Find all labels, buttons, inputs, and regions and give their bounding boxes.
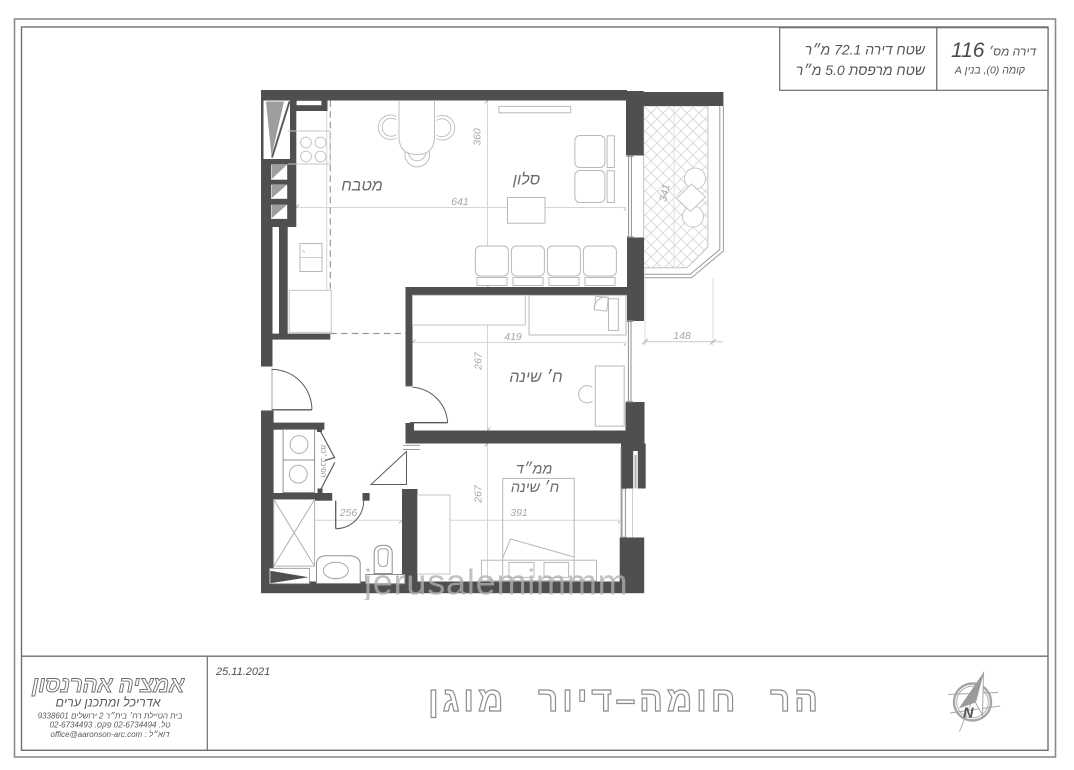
svg-text:256: 256 [339,507,358,519]
svg-text:קומה (0), בנין A: קומה (0), בנין A [954,65,1025,77]
svg-text:הר חומה–דיור מוגן: הר חומה–דיור מוגן [428,680,822,719]
svg-text:שטח דירה 72.1 מ״ר: שטח דירה 72.1 מ״ר [805,42,926,58]
svg-text:אדריכל ומתכנן ערים: אדריכל ומתכנן ערים [56,696,162,710]
svg-text:116: 116 [951,39,985,62]
svg-text:בית הטיילת רח׳ בית״ר 2 ירושל: בית הטיילת רח׳ בית״ר 2 ירושלים 9338601 [38,712,183,721]
svg-text:ממ״ד: ממ״ד [516,462,553,478]
svg-text:641: 641 [451,196,469,208]
svg-text:אמציה אהרנסון: אמציה אהרנסון [31,672,185,697]
svg-text:360: 360 [472,128,484,146]
svg-text:267: 267 [473,484,485,504]
svg-text:jerusalemimmm: jerusalemimmm [363,562,628,603]
svg-text:דירה מס׳: דירה מס׳ [989,45,1038,59]
svg-text:מטבח: מטבח [341,178,383,195]
svg-text:148: 148 [673,330,691,342]
svg-text:ח׳ שינה: ח׳ שינה [509,369,562,386]
svg-text:מכ׳ כביסה: מכ׳ כביסה [319,444,328,478]
svg-text:סלון: סלון [512,171,541,189]
svg-text:N: N [963,706,974,722]
svg-text:ח׳ שינה: ח׳ שינה [511,480,559,496]
svg-text:391: 391 [510,507,528,519]
svg-text:שטח מרפסת 5.0 מ״ר: שטח מרפסת 5.0 מ״ר [796,62,926,78]
svg-text:טל. 02-6734494 פקס. 02-6734493: טל. 02-6734494 פקס. 02-6734493 [50,721,172,730]
svg-text:25.11.2021: 25.11.2021 [215,666,270,678]
svg-text:419: 419 [504,331,522,343]
svg-text:דוא״ל : office@aaronson-arc.co: דוא״ל : office@aaronson-arc.com [51,730,171,739]
svg-text:267: 267 [473,351,485,371]
